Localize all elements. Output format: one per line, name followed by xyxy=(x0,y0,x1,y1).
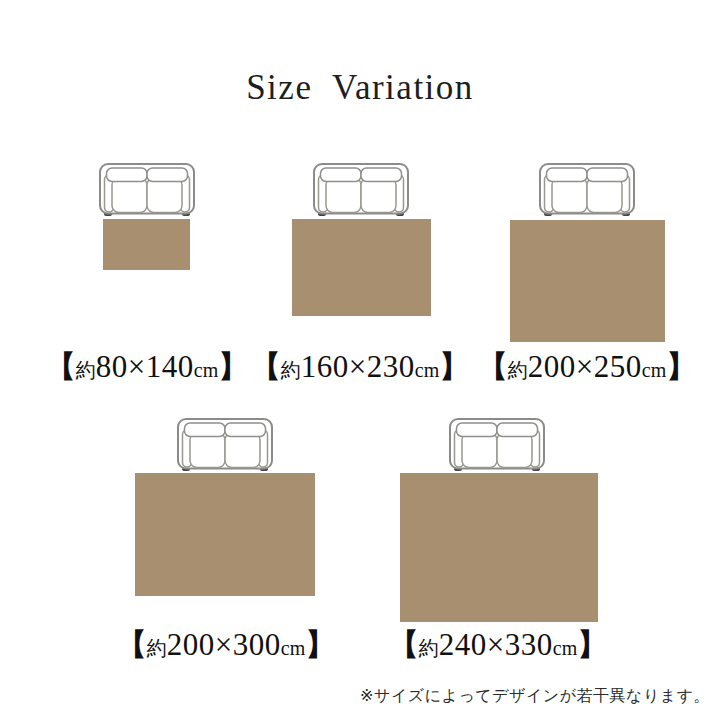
size-prefix: 約 xyxy=(508,352,528,388)
rug-swatch xyxy=(400,473,598,622)
sofa-top-view-icon xyxy=(99,163,195,217)
size-unit: cm xyxy=(281,630,305,666)
size-label: 【約200×250cm】 xyxy=(478,349,696,385)
bracket-open: 【 xyxy=(117,627,147,663)
size-dimensions: 80×140 xyxy=(96,349,194,385)
size-label: 【約80×140cm】 xyxy=(46,349,248,385)
bracket-open: 【 xyxy=(478,349,508,385)
size-unit: cm xyxy=(415,352,439,388)
size-prefix: 約 xyxy=(281,352,301,388)
rug-swatch xyxy=(510,220,665,342)
sofa-top-view-icon xyxy=(313,163,409,217)
size-unit: cm xyxy=(553,630,577,666)
size-label: 【約160×230cm】 xyxy=(251,349,469,385)
sofa-top-view-icon xyxy=(539,163,635,217)
rug-swatch xyxy=(135,473,315,596)
size-variation-panel: Size Variation 【約80×140cm】 xyxy=(0,0,720,720)
footnote: ※サイズによってデザインが若干異なります。 xyxy=(360,686,710,707)
size-dimensions: 160×230 xyxy=(301,349,415,385)
sofa-top-view-icon xyxy=(449,418,545,472)
bracket-close: 】 xyxy=(218,349,248,385)
size-unit: cm xyxy=(642,352,666,388)
bracket-open: 【 xyxy=(251,349,281,385)
rug-swatch xyxy=(292,219,431,316)
size-dimensions: 240×330 xyxy=(439,627,553,663)
size-label: 【約240×330cm】 xyxy=(389,627,607,663)
page-title: Size Variation xyxy=(0,68,720,108)
bracket-close: 】 xyxy=(577,627,607,663)
size-prefix: 約 xyxy=(147,630,167,666)
size-prefix: 約 xyxy=(419,630,439,666)
size-unit: cm xyxy=(194,352,218,388)
bracket-close: 】 xyxy=(439,349,469,385)
bracket-open: 【 xyxy=(46,349,76,385)
sofa-top-view-icon xyxy=(177,418,273,472)
bracket-close: 】 xyxy=(305,627,335,663)
size-prefix: 約 xyxy=(76,352,96,388)
size-label: 【約200×300cm】 xyxy=(117,627,335,663)
bracket-open: 【 xyxy=(389,627,419,663)
bracket-close: 】 xyxy=(666,349,696,385)
size-dimensions: 200×300 xyxy=(167,627,281,663)
size-dimensions: 200×250 xyxy=(528,349,642,385)
rug-swatch xyxy=(103,219,190,270)
